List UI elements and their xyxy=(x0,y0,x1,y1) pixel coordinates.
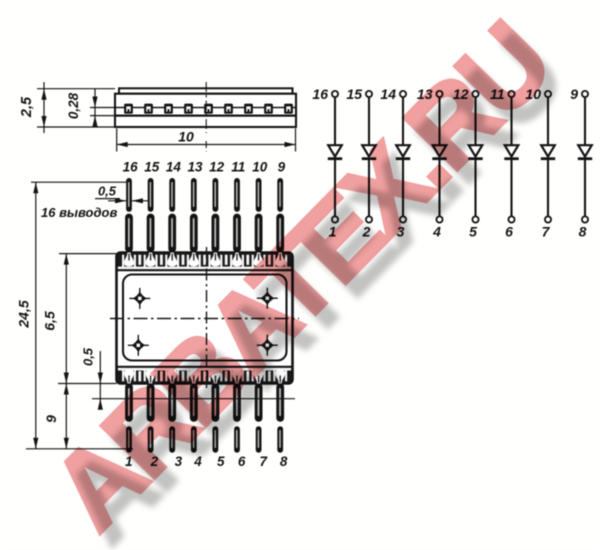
svg-text:0,5: 0,5 xyxy=(81,347,96,366)
svg-text:14: 14 xyxy=(166,160,182,175)
svg-text:9: 9 xyxy=(278,160,286,175)
svg-text:16: 16 xyxy=(312,86,328,102)
svg-text:10: 10 xyxy=(252,160,268,175)
svg-text:10: 10 xyxy=(178,129,194,145)
svg-text:0,5: 0,5 xyxy=(98,184,117,199)
svg-text:6,5: 6,5 xyxy=(42,311,58,331)
svg-text:16: 16 xyxy=(123,160,139,175)
svg-text:5: 5 xyxy=(469,224,477,240)
svg-text:0,28: 0,28 xyxy=(66,92,81,119)
svg-text:8: 8 xyxy=(579,224,587,240)
svg-text:15: 15 xyxy=(346,86,362,102)
svg-text:8: 8 xyxy=(280,454,288,469)
svg-text:12: 12 xyxy=(209,160,225,175)
svg-text:16 выводов: 16 выводов xyxy=(41,205,117,220)
svg-text:2,5: 2,5 xyxy=(19,96,35,118)
svg-text:11: 11 xyxy=(231,160,245,175)
svg-text:13: 13 xyxy=(187,160,203,175)
svg-text:6: 6 xyxy=(505,224,513,240)
svg-text:9: 9 xyxy=(43,415,59,423)
svg-text:7: 7 xyxy=(542,224,551,240)
svg-text:6: 6 xyxy=(238,454,246,469)
svg-text:24,5: 24,5 xyxy=(16,300,32,328)
svg-text:15: 15 xyxy=(144,160,160,175)
